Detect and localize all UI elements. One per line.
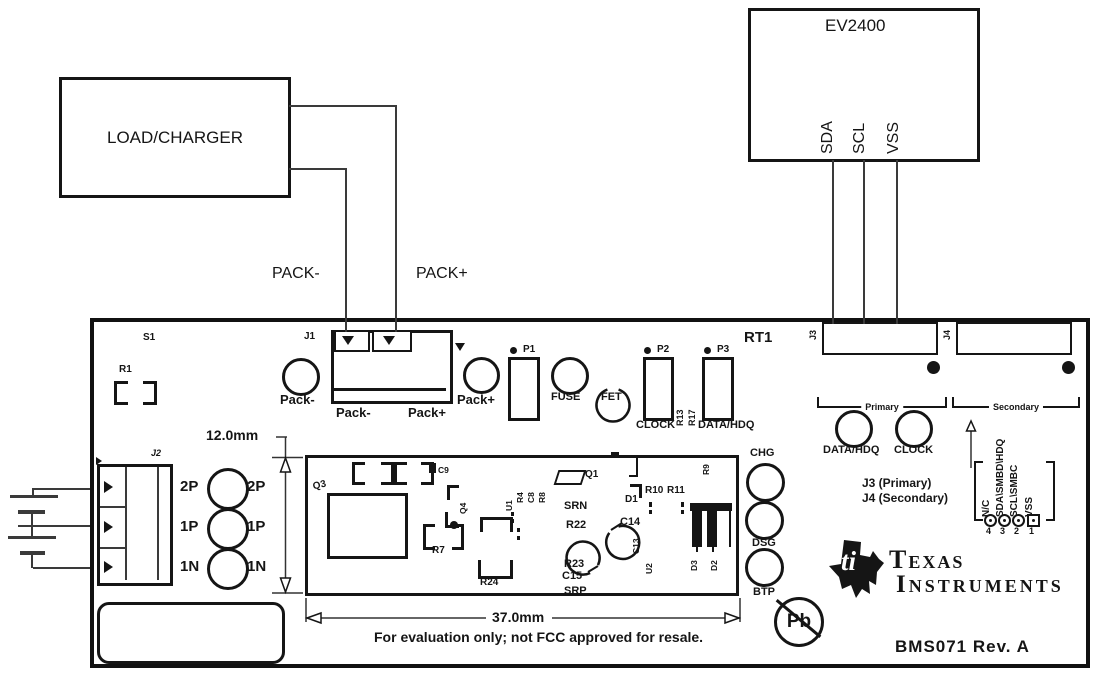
eval-board-connection-diagram: J2 2P 1P 1N 2P 1P 1N S1 R1 Pack- J1 Pack… (0, 0, 1100, 679)
p2-header (643, 357, 674, 421)
d2-ref-label: D2 (710, 553, 719, 571)
j3-connector (822, 322, 938, 355)
outline-notch (636, 456, 638, 477)
p1-pin1-dot-icon (510, 347, 517, 354)
r10-ref-label: R10 (645, 486, 663, 496)
p3-header (702, 357, 734, 421)
outline-notch (629, 475, 638, 477)
sda-wire (832, 160, 834, 324)
r1-ref-label: R1 (119, 365, 132, 375)
pin-name-vss: VSS (1025, 405, 1035, 517)
pinout-bracket-right (1046, 461, 1055, 521)
pack-plus-net-label: PACK+ (416, 266, 468, 282)
u2-ref-label: U2 (645, 556, 654, 574)
cell-label-right-2p: 2P (247, 479, 265, 494)
pin-number-3: 3 (1000, 527, 1005, 536)
r1-pad-icon (114, 381, 128, 405)
pad-bracket-icon (352, 462, 365, 485)
s1-ref-label: S1 (143, 333, 155, 343)
brand-line1: Texas (889, 547, 964, 573)
tp-clock-label: CLOCK (894, 445, 933, 456)
pad-tick-icon (511, 519, 514, 523)
c13-ref-label: C13 (632, 532, 641, 554)
pin-name-nc: N/C (982, 405, 992, 517)
pin-number-1: 1 (1029, 527, 1034, 536)
ev2400-pin-vss: VSS (886, 98, 902, 154)
pad-tick-icon (712, 547, 714, 552)
fcc-note: For evaluation only; not FCC approved fo… (374, 630, 703, 644)
r7-blob-icon (450, 521, 458, 529)
brand-line2: Instruments (896, 572, 1064, 597)
pack-plus-wire (289, 105, 397, 107)
j2-divider (157, 467, 159, 580)
rt1-ref-label: RT1 (744, 330, 772, 345)
r17-ref-label: R17 (688, 400, 697, 426)
battery-plate-long-icon (10, 495, 58, 498)
j2-cell-divider (100, 547, 127, 549)
p1-ref-label: P1 (523, 345, 535, 355)
pad-bracket-icon (381, 462, 394, 485)
dim-width-label: 37.0mm (492, 610, 544, 624)
j1-pin-pack-minus-label: Pack- (336, 406, 371, 419)
battery-wire-1n (33, 567, 90, 569)
d1-ref-label: D1 (625, 495, 638, 505)
pin-name-scl: SCL\SMBC (1010, 405, 1020, 517)
j2-cell-divider (100, 506, 127, 508)
diode-body-icon (692, 511, 702, 547)
r22-ref-label: R22 (566, 520, 586, 531)
j4-secondary-note: J4 (Secondary) (862, 492, 948, 504)
d3-ref-label: D3 (690, 553, 699, 571)
diode-lead-icon (729, 511, 731, 547)
j3-primary-note: J3 (Primary) (862, 477, 931, 489)
fet-label: FET (601, 392, 622, 403)
tp-pack-plus-label: Pack+ (457, 393, 495, 406)
cell-label-left-1n: 1N (180, 559, 199, 574)
p2-ref-label: P2 (657, 345, 669, 355)
j3-ref-label: J3 (809, 324, 818, 340)
load-charger-label: LOAD/CHARGER (107, 128, 243, 148)
j1-pin-pack-plus-label: Pack+ (408, 406, 446, 419)
c14-ref-label: C14 (620, 517, 640, 528)
ev2400-title: EV2400 (825, 17, 886, 34)
p2-signal-label: CLOCK (636, 420, 675, 431)
fuse-label: FUSE (551, 392, 580, 403)
down-triangle-icon (455, 343, 465, 351)
pad-u-icon (480, 517, 513, 532)
board-rev-label: BMS071 Rev. A (895, 638, 1030, 655)
j2-polarity-icon (96, 457, 102, 465)
pad-corner-icon (447, 485, 459, 500)
c15-ref-label: C15 (562, 571, 582, 582)
battery-link (31, 513, 33, 537)
r9-ref-label: R9 (702, 458, 711, 475)
pack-minus-net-label: PACK- (272, 266, 320, 282)
cell-label-right-1p: 1P (247, 519, 265, 534)
srp-label: SRP (564, 586, 587, 597)
q1-body (554, 470, 587, 485)
pad-bracket-icon (394, 462, 407, 485)
vss-wire (896, 160, 898, 324)
j2-pin-triangle-icon (104, 561, 113, 573)
r4-ref-label: R4 (516, 487, 525, 503)
tp-data-hdq-label: DATA/HDQ (823, 445, 879, 456)
j1-base-strip (332, 388, 446, 391)
pad-tick-icon (649, 502, 652, 507)
p2-pin1-dot-icon (644, 347, 651, 354)
pad-tick-icon (517, 536, 520, 540)
r1-pad-icon (143, 381, 157, 405)
edge-pad-icon (611, 452, 619, 457)
fuse-circle (551, 357, 589, 395)
cell-label-left-1p: 1P (180, 519, 198, 534)
j3-pin1-dot-icon (927, 361, 940, 374)
pad-tick-icon (681, 510, 684, 514)
tp-clock-circle (895, 410, 933, 448)
j2-pin-triangle-icon (104, 481, 113, 493)
q1-ref-label: Q1 (585, 470, 598, 480)
tp-dsg-circle (745, 501, 784, 540)
scl-wire (863, 160, 865, 324)
j1-ref-label: J1 (304, 332, 315, 342)
load-charger-box: LOAD/CHARGER (59, 77, 291, 198)
pack-plus-wire (395, 105, 397, 332)
r24-ref-label: R24 (480, 578, 498, 588)
tp-2p-circle (207, 468, 249, 510)
j2-pin-triangle-icon (104, 521, 113, 533)
r8-ref-label: R8 (538, 487, 547, 503)
ev2400-pin-scl: SCL (852, 98, 868, 154)
pad-tick-icon (517, 528, 520, 532)
p1-header (508, 357, 540, 421)
r7-ref-label: R7 (432, 546, 445, 556)
u1-ref-label: U1 (505, 493, 514, 511)
pin-number-4: 4 (986, 527, 991, 536)
pin-number-2: 2 (1014, 527, 1019, 536)
j2-ref-label: J2 (151, 449, 161, 458)
j2-divider (125, 467, 127, 580)
tp-1n-circle (207, 548, 249, 590)
pad-tick-icon (511, 512, 514, 516)
cell-label-right-1n: 1N (247, 559, 266, 574)
r23-ref-label: R23 (564, 559, 584, 570)
down-triangle-icon (383, 336, 395, 345)
tp-chg-label: CHG (750, 448, 774, 459)
primary-group-label: Primary (861, 402, 903, 412)
pad-tick-icon (649, 510, 652, 514)
cell-label-left-2p: 2P (180, 479, 198, 494)
p3-ref-label: P3 (717, 345, 729, 355)
c9-ref-label: C9 (438, 466, 449, 475)
diode-body-icon (707, 511, 717, 547)
j4-pin1-dot-icon (1062, 361, 1075, 374)
q4-ref-label: Q4 (459, 494, 468, 514)
tp-pack-minus-label: Pack- (280, 393, 315, 406)
dim-height-label: 12.0mm (206, 428, 258, 442)
down-triangle-icon (342, 336, 354, 345)
tp-btp-circle (745, 548, 784, 587)
pin-name-sda: SDA\SMBD\HDQ (996, 405, 1006, 517)
p3-signal-label: DATA/HDQ (698, 420, 754, 431)
tp-data-hdq-circle (835, 410, 873, 448)
ti-monogram: ti (841, 548, 856, 575)
srn-label: SRN (564, 501, 587, 512)
p3-pin1-dot-icon (704, 347, 711, 354)
c9-pad-icon (429, 463, 436, 473)
battery-wire-1p (18, 525, 90, 527)
pack-minus-wire (345, 168, 347, 332)
ev2400-pin-sda: SDA (820, 98, 836, 154)
battery-link (31, 554, 33, 568)
battery-link (32, 488, 34, 496)
label-area (97, 602, 285, 664)
r13-ref-label: R13 (676, 400, 685, 426)
r11-ref-label: R11 (667, 486, 685, 496)
tp-1p-circle (207, 508, 249, 550)
tp-pack-minus-circle (282, 358, 320, 396)
j4-ref-label: J4 (943, 324, 952, 340)
pack-minus-wire (289, 168, 347, 170)
battery-wire-2p (33, 488, 90, 490)
pad-tick-icon (681, 502, 684, 507)
q3-body (327, 493, 408, 559)
tp-btp-label: BTP (753, 587, 775, 598)
primary-group-bracket: Primary (817, 397, 947, 408)
tp-chg-circle (746, 463, 785, 502)
pad-tick-icon (696, 547, 698, 552)
c8-ref-label: C8 (527, 487, 536, 503)
tp-pack-plus-circle (463, 357, 500, 394)
j4-connector (956, 322, 1072, 355)
diode-bar-icon (690, 503, 732, 511)
